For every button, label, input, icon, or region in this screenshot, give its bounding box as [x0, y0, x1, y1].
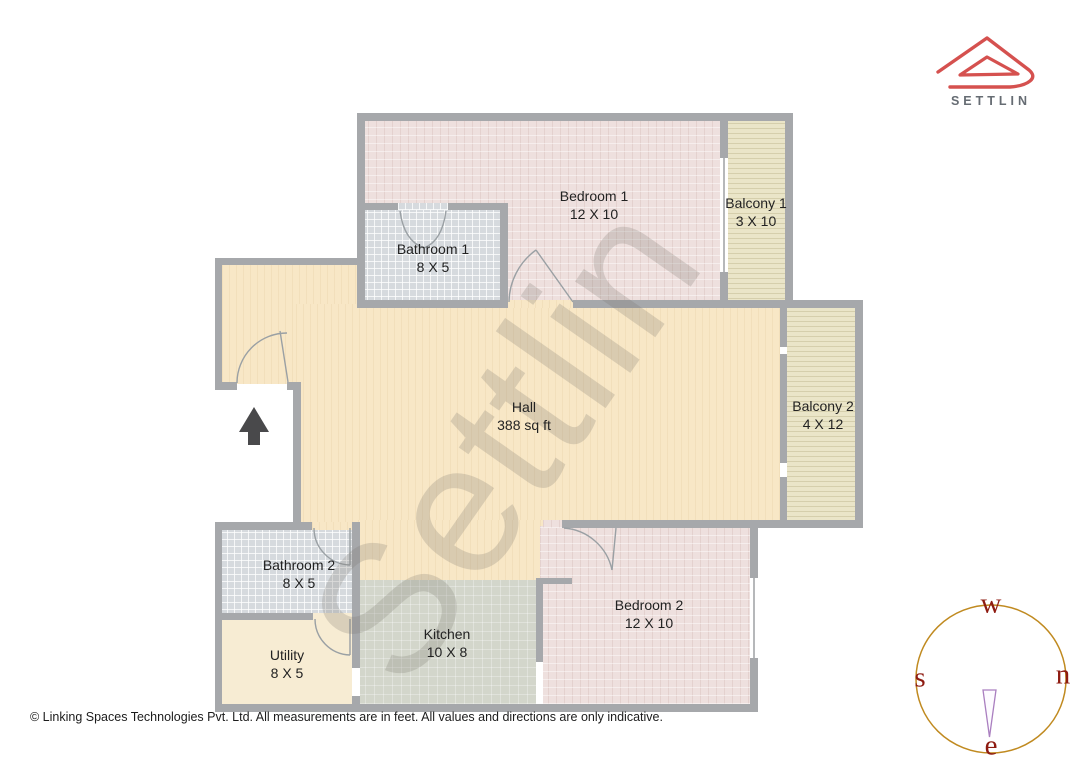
arrow-head [239, 407, 269, 432]
compass-letter-west: w [981, 588, 1002, 621]
room-dims: 12 X 10 [560, 205, 628, 223]
room-dims: 8 X 5 [263, 574, 335, 592]
room-label-hall: Hall 388 sq ft [497, 398, 551, 434]
compass-letter-east: e [985, 730, 998, 763]
compass-letter-north: n [1056, 659, 1071, 692]
room-name: Bedroom 2 [615, 596, 683, 614]
room-label-bedroom1: Bedroom 1 12 X 10 [560, 187, 628, 223]
copyright-note: © Linking Spaces Technologies Pvt. Ltd. … [30, 710, 663, 724]
room-dims: 4 X 12 [792, 415, 853, 433]
bedroom2-door-leaf [612, 528, 616, 570]
room-dims: 388 sq ft [497, 416, 551, 434]
room-dims: 10 X 8 [424, 643, 471, 661]
room-name: Hall [497, 398, 551, 416]
room-name: Bathroom 1 [397, 240, 469, 258]
bedroom1-door-arc [509, 250, 536, 302]
entrance-door-arc [237, 333, 287, 383]
room-dims: 12 X 10 [615, 614, 683, 632]
room-name: Bathroom 2 [263, 556, 335, 574]
floorplan-canvas: SETTLIN [0, 0, 1080, 764]
brand-wordmark: SETTLIN [941, 94, 1041, 108]
arrow-tail [248, 432, 260, 445]
bedroom1-door-leaf [536, 250, 573, 302]
room-dims: 3 X 10 [725, 212, 786, 230]
room-name: Bedroom 1 [560, 187, 628, 205]
north-arrow-icon [239, 407, 269, 445]
entrance-door-leaf [280, 331, 288, 382]
room-dims: 8 X 5 [397, 258, 469, 276]
room-label-kitchen: Kitchen 10 X 8 [424, 625, 471, 661]
room-name: Balcony 1 [725, 194, 786, 212]
room-label-utility: Utility 8 X 5 [270, 646, 304, 682]
room-label-balcony2: Balcony 2 4 X 12 [792, 397, 853, 433]
room-name: Kitchen [424, 625, 471, 643]
room-dims: 8 X 5 [270, 664, 304, 682]
room-label-bathroom2: Bathroom 2 8 X 5 [263, 556, 335, 592]
room-name: Utility [270, 646, 304, 664]
bedroom2-door-arc [564, 528, 612, 570]
utility-door-arc [315, 619, 350, 655]
room-name: Balcony 2 [792, 397, 853, 415]
room-label-bedroom2: Bedroom 2 12 X 10 [615, 596, 683, 632]
room-label-balcony1: Balcony 1 3 X 10 [725, 194, 786, 230]
room-label-bathroom1: Bathroom 1 8 X 5 [397, 240, 469, 276]
compass-letter-south: s [914, 662, 925, 695]
